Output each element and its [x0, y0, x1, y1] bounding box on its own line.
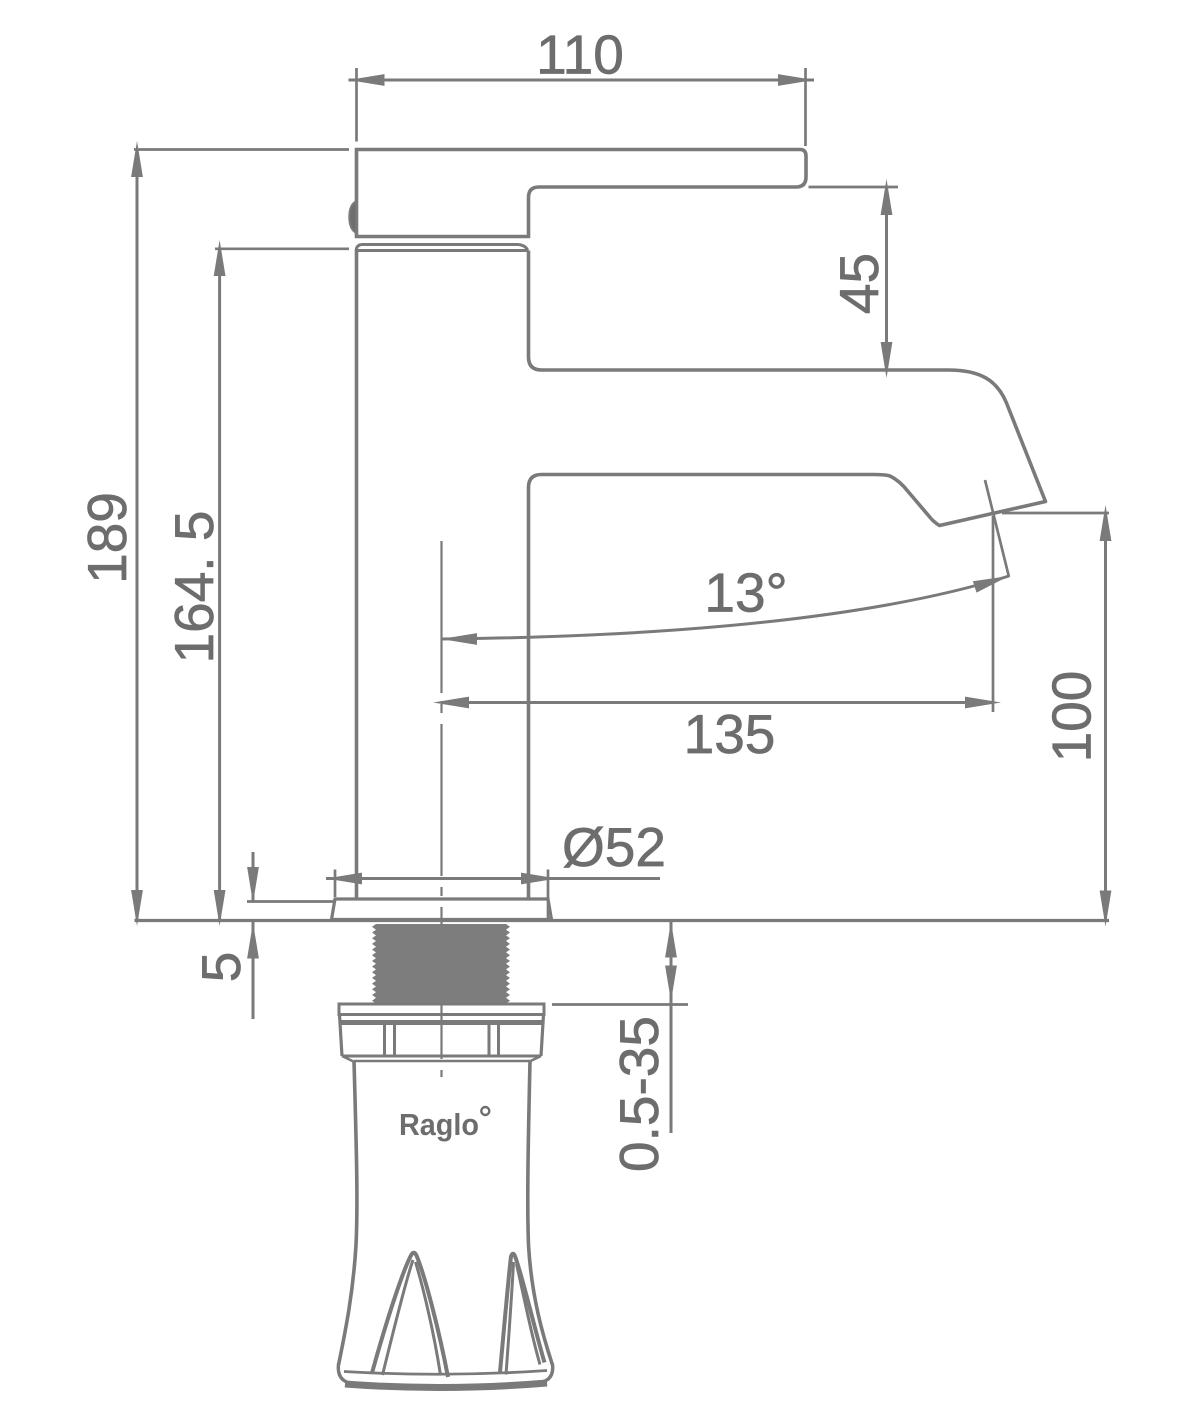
svg-text:0.5-35: 0.5-35	[608, 1016, 670, 1172]
svg-text:5: 5	[190, 952, 252, 983]
svg-text:164. 5: 164. 5	[163, 511, 225, 664]
svg-text:135: 135	[684, 703, 776, 765]
svg-text:Raglo: Raglo	[399, 1107, 479, 1142]
svg-text:Ø52: Ø52	[562, 816, 666, 878]
svg-text:110: 110	[536, 24, 624, 86]
svg-text:45: 45	[828, 253, 890, 314]
svg-text:189: 189	[76, 492, 138, 584]
svg-text:13°: 13°	[704, 562, 787, 624]
svg-text:100: 100	[1041, 671, 1103, 763]
